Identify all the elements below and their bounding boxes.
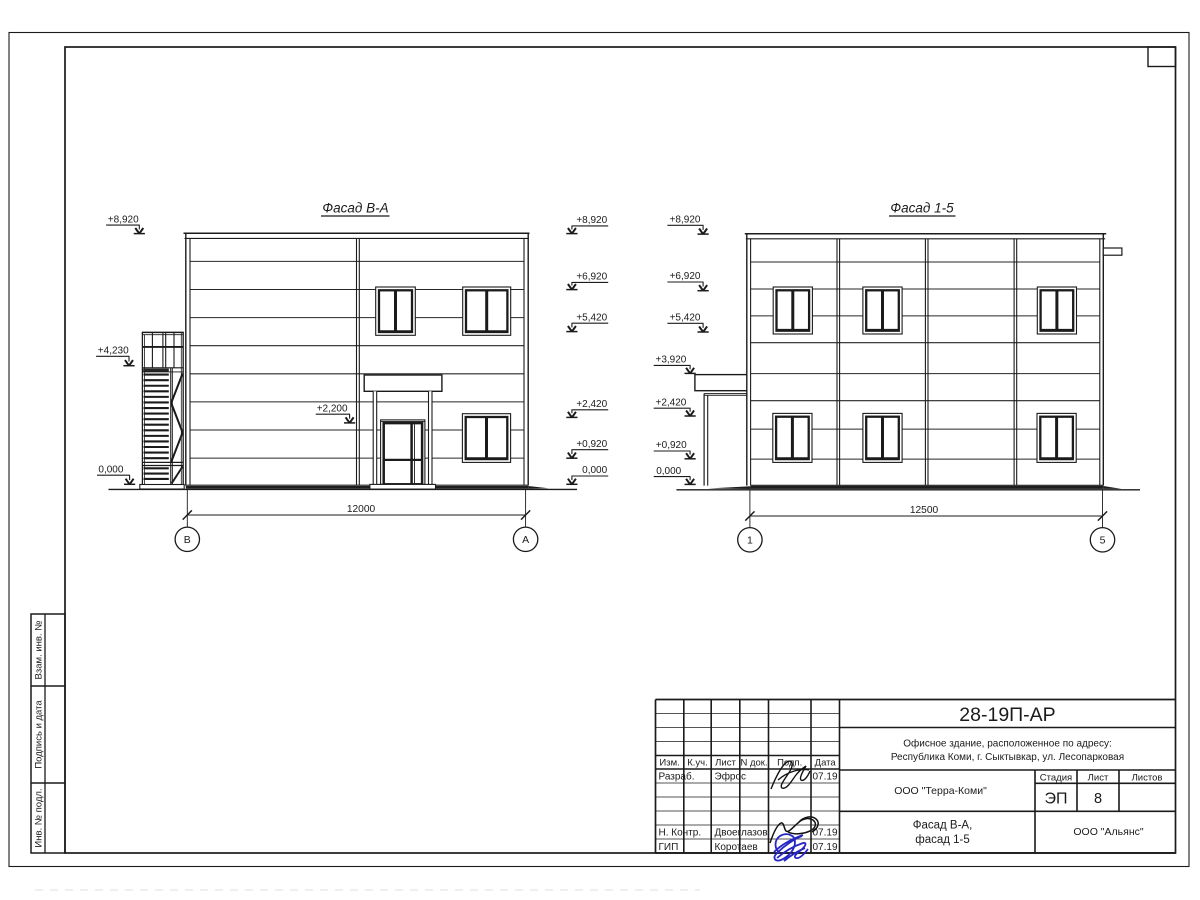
svg-text:1: 1	[747, 535, 753, 547]
svg-text:фасад 1-5: фасад 1-5	[915, 834, 970, 846]
svg-text:Подп.: Подп.	[777, 758, 802, 769]
svg-text:Н. Контр.: Н. Контр.	[659, 828, 702, 839]
svg-text:+5,420: +5,420	[670, 313, 701, 324]
svg-text:Двоеглазов: Двоеглазов	[715, 828, 768, 839]
svg-text:Лист: Лист	[1088, 772, 1109, 783]
svg-text:ЭП: ЭП	[1045, 791, 1068, 808]
svg-text:В: В	[184, 534, 191, 546]
svg-text:Листов: Листов	[1132, 772, 1163, 783]
svg-text:+8,920: +8,920	[108, 214, 139, 225]
svg-text:28-19П-АР: 28-19П-АР	[959, 704, 1055, 726]
svg-text:Лист: Лист	[715, 758, 736, 769]
svg-text:12000: 12000	[347, 504, 376, 515]
svg-text:ООО "Альянс": ООО "Альянс"	[1073, 826, 1143, 838]
svg-text:+5,420: +5,420	[576, 312, 607, 323]
svg-text:+2,420: +2,420	[576, 399, 607, 410]
svg-text:07.19: 07.19	[813, 842, 838, 853]
svg-text:+6,920: +6,920	[670, 271, 701, 282]
svg-text:Дата: Дата	[815, 758, 837, 769]
svg-text:Республика Коми, г. Сыктывкар,: Республика Коми, г. Сыктывкар, ул. Лесоп…	[891, 751, 1124, 763]
svg-text:Эфрос: Эфрос	[715, 770, 747, 782]
svg-text:+6,920: +6,920	[576, 272, 607, 283]
svg-text:Изм.: Изм.	[659, 758, 679, 769]
svg-text:+0,920: +0,920	[576, 439, 607, 450]
svg-text:+0,920: +0,920	[656, 440, 687, 451]
svg-text:+8,920: +8,920	[670, 215, 701, 226]
svg-text:Коротаев: Коротаев	[715, 842, 758, 853]
svg-text:Инв. № подл.: Инв. № подл.	[34, 788, 45, 847]
svg-text:N док.: N док.	[740, 758, 767, 769]
svg-text:8: 8	[1094, 791, 1102, 807]
svg-text:12500: 12500	[910, 505, 939, 516]
svg-text:Фасад 1-5: Фасад 1-5	[890, 201, 954, 216]
svg-text:А: А	[522, 534, 529, 546]
svg-text:К.уч.: К.уч.	[687, 758, 708, 769]
svg-text:+3,920: +3,920	[656, 355, 687, 366]
svg-text:Взам. инв. №: Взам. инв. №	[34, 621, 45, 680]
svg-text:Фасад В-А: Фасад В-А	[322, 201, 388, 216]
svg-text:Фасад В-А,: Фасад В-А,	[913, 820, 973, 832]
svg-text:+8,920: +8,920	[576, 215, 607, 226]
svg-text:ООО "Терра-Коми": ООО "Терра-Коми"	[894, 785, 987, 797]
svg-text:0,000: 0,000	[98, 464, 123, 475]
svg-text:+2,200: +2,200	[317, 403, 348, 414]
svg-text:0,000: 0,000	[582, 465, 607, 476]
svg-text:+4,230: +4,230	[98, 346, 129, 357]
svg-text:ГИП: ГИП	[659, 842, 679, 853]
svg-text:Стадия: Стадия	[1040, 772, 1072, 783]
svg-text:07.19: 07.19	[813, 771, 838, 782]
svg-text:5: 5	[1100, 535, 1106, 547]
svg-text:Подпись и дата: Подпись и дата	[34, 700, 45, 769]
svg-text:Разраб.: Разраб.	[659, 770, 695, 782]
svg-text:Офисное здание, расположенное: Офисное здание, расположенное по адресу:	[903, 738, 1112, 750]
svg-text:0,000: 0,000	[656, 466, 681, 477]
svg-text:+2,420: +2,420	[656, 397, 687, 408]
